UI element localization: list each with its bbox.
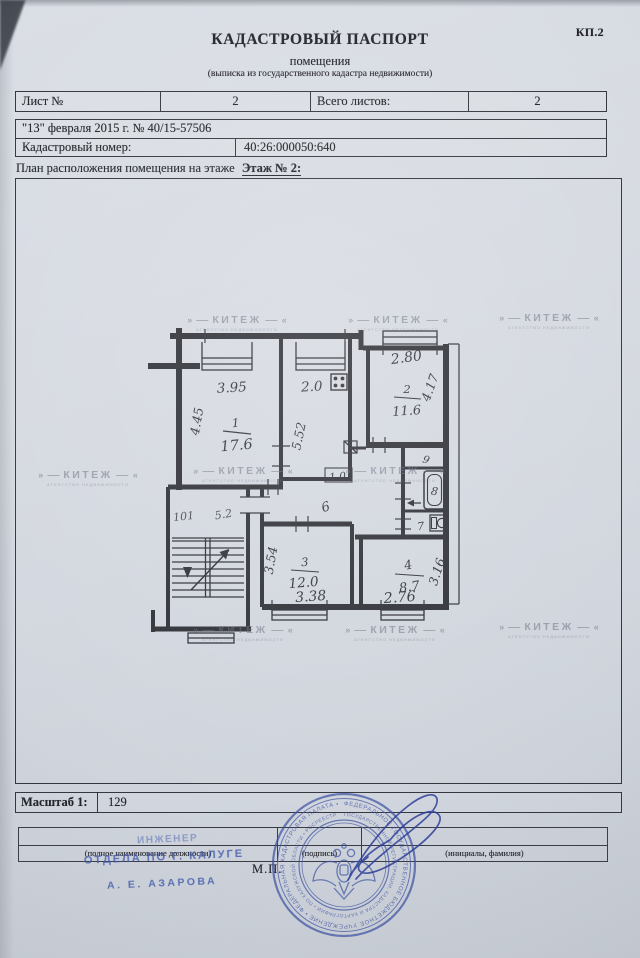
room3-number: 3 <box>301 555 309 569</box>
room4-number: 4 <box>402 556 414 573</box>
wc-number: 7 <box>417 520 425 534</box>
staircase <box>172 538 244 597</box>
plan-caption-text: План расположения помещения на этаже <box>16 161 235 175</box>
document-title: КАДАСТРОВЫЙ ПАСПОРТ <box>0 31 640 49</box>
stamp-department-line: ОТДЕЛА ПО Г. КАЛУГЕ <box>84 845 308 867</box>
total-sheets-value: 2 <box>469 92 606 111</box>
corridor-number: 6 <box>320 499 333 516</box>
room2-area: 11.6 <box>392 403 422 420</box>
stove-icon <box>331 374 347 390</box>
dim-kitchen-left: 5.52 <box>288 421 308 451</box>
photo-left-shadow <box>0 0 14 958</box>
dim-r1-left: 4.45 <box>187 406 207 437</box>
room4-area: 8.7 <box>398 579 421 597</box>
room1-area: 17.6 <box>220 437 254 456</box>
sheet-value: 2 <box>161 92 311 111</box>
total-sheets-label: Всего листов: <box>311 92 469 111</box>
plan-caption-floor: Этаж № 2: <box>242 161 301 176</box>
document-subtitle: помещения <box>0 54 640 69</box>
cadastral-number-label: Кадастровый номер: <box>16 139 236 156</box>
cadastral-passport-scan: КП.2 КАДАСТРОВЫЙ ПАСПОРТ помещения (выпи… <box>0 0 640 958</box>
bath-number: 8 <box>430 485 439 499</box>
pencil-marks: 101 5.2 <box>173 507 234 524</box>
plan-caption: План расположения помещения на этаже Эта… <box>16 161 301 176</box>
date-number-line: "13" февраля 2015 г. № 40/15-57506 <box>16 120 217 138</box>
cadastral-number-value: 40:26:000050:640 <box>236 139 344 156</box>
number-table: "13" февраля 2015 г. № 40/15-57506 Кадас… <box>15 119 607 157</box>
room3-area: 12.0 <box>288 574 320 593</box>
room1-number: 1 <box>231 416 240 431</box>
pencil-mark-a: 101 <box>173 509 195 524</box>
floor-plan-svg: 3.95 2.0 2.80 4.45 5.52 4.17 3.54 3.38 2… <box>148 315 478 655</box>
office-stamp: ИНЖЕНЕР ОТДЕЛА ПО Г. КАЛУГЕ А. Е. АЗАРОВ… <box>77 828 309 893</box>
closet-number: 9 <box>421 453 431 467</box>
dim-kitchen-top: 2.0 <box>300 378 324 395</box>
room2-number: 2 <box>402 382 410 396</box>
dim-r1-top: 3.95 <box>216 379 247 397</box>
document-note: (выписка из государственного кадастра не… <box>0 69 640 79</box>
scale-label: Масштаб 1: <box>16 793 98 812</box>
pen-signature <box>330 778 460 896</box>
door-arrow-icon <box>407 500 421 507</box>
photo-top-shadow <box>0 0 640 7</box>
pencil-mark-b: 5.2 <box>214 507 233 523</box>
dim-r2-right: 4.17 <box>418 372 442 404</box>
sheet-table: Лист № 2 Всего листов: 2 <box>15 91 607 112</box>
balcony-line <box>448 344 459 604</box>
scale-value: 129 <box>98 793 137 812</box>
dim-r2-top: 2.80 <box>389 348 423 368</box>
